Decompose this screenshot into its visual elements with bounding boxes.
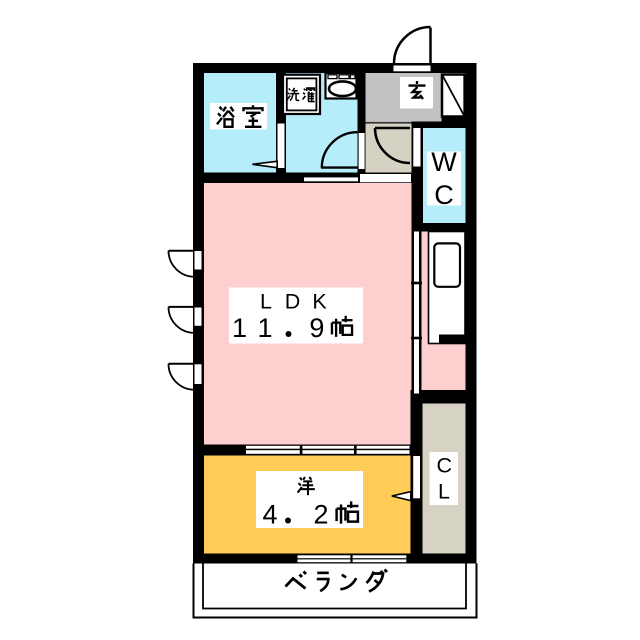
svg-text:1: 1 (232, 313, 247, 343)
svg-text:4: 4 (262, 500, 277, 530)
svg-text:K: K (312, 290, 327, 314)
svg-text:C: C (437, 454, 453, 478)
svg-text:W: W (431, 147, 457, 177)
svg-text:1: 1 (257, 313, 272, 343)
svg-text:L: L (260, 290, 272, 314)
svg-text:L: L (438, 480, 450, 504)
svg-text:2: 2 (313, 500, 328, 530)
svg-text:9: 9 (309, 313, 324, 343)
svg-text:C: C (434, 180, 454, 210)
svg-text:D: D (285, 290, 301, 314)
